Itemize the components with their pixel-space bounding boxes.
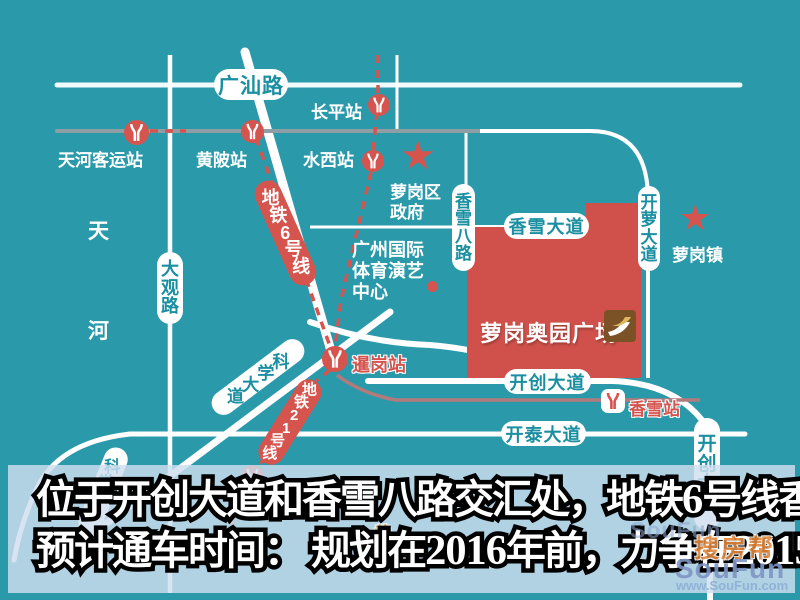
road-label-kaitai: 开泰大道 <box>501 421 586 446</box>
station-label-xiangxue: 香雪站 <box>629 395 680 420</box>
metro-station-icon <box>124 120 149 145</box>
place-label-tianhe-area: 天河 <box>88 215 109 345</box>
road-label-kaichuang-horizontal: 开创大道 <box>504 369 591 394</box>
plaza-label: 萝岗奥园广场 <box>480 316 618 348</box>
place-label-arena-line3: 中心 <box>352 278 388 304</box>
station-label-shuixi: 水西站 <box>303 146 354 171</box>
road-label-daguan: 大观路 <box>157 252 183 324</box>
aoyuan-logo-icon <box>604 310 636 342</box>
star-icon-district-gov: ★ <box>400 136 436 176</box>
road-label-xiangxue-avenue: 香雪大道 <box>504 213 589 239</box>
road-label-kailuo: 开萝大道 <box>638 186 660 271</box>
station-label-changping: 长平站 <box>311 98 362 123</box>
caption-line1: 位于开创大道和香雪八路交汇处，地铁6号线香雪站上盖 位于开创大道和香雪八路交汇处… <box>36 479 800 521</box>
metro-station-icon <box>241 120 264 143</box>
road-label-guangshan: 广汕路 <box>214 69 288 100</box>
station-label-huangpi: 黄陂站 <box>196 146 247 171</box>
station-label-xiagang: 暹岗站 <box>352 351 406 377</box>
place-label-luogang-town: 萝岗镇 <box>672 241 723 266</box>
caption-line1-fill: 位于开创大道和香雪八路交汇处，地铁6号线香雪站上盖 <box>36 479 800 521</box>
metro-station-icon-xiangxue <box>601 389 625 413</box>
star-icon-luogang-town: ★ <box>679 200 711 236</box>
watermark-url: www.SouFun.com <box>676 578 788 593</box>
metro-station-icon <box>368 94 390 116</box>
map-canvas: 萝岗奥园广场 广汕路 大观路 香雪八路 香雪大道 开萝大道 开创大道 开泰大道 … <box>0 0 800 600</box>
plaza-block <box>467 227 641 378</box>
metro-station-icon <box>362 150 384 172</box>
road-label-xiangxue8: 香雪八路 <box>452 184 475 271</box>
metro-station-icon <box>322 346 348 372</box>
station-label-tianhe-keyun: 天河客运站 <box>58 146 143 171</box>
arena-location-dot <box>427 281 438 292</box>
place-label-district-gov-line2: 政府 <box>390 198 424 223</box>
